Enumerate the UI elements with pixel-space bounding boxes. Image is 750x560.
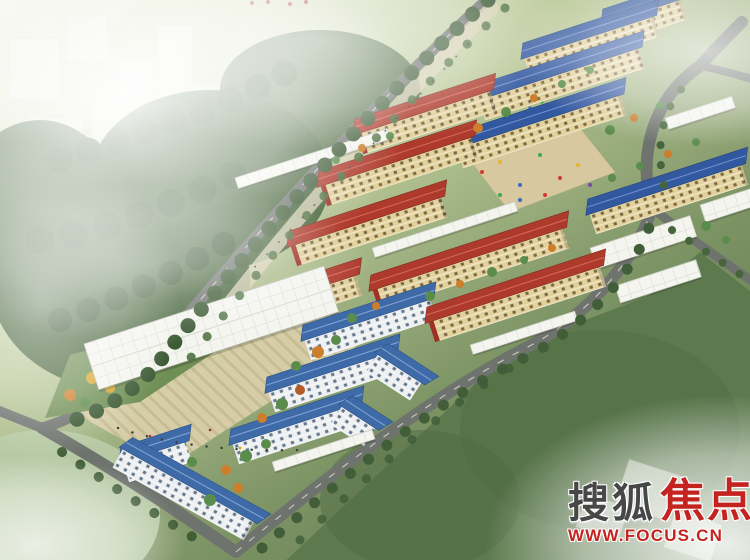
watermark-brand-text: 搜狐 [568,469,656,529]
watermark-sohu-focus: 搜狐 焦点 WWW.FOCUS.CN [568,464,750,546]
aerial-rendering: 搜狐 焦点 WWW.FOCUS.CN [0,0,750,560]
watermark-product-text: 焦点 [660,464,750,529]
watermark-logo: 搜狐 焦点 [568,464,750,529]
watermark-url-text: WWW.FOCUS.CN [568,526,750,546]
